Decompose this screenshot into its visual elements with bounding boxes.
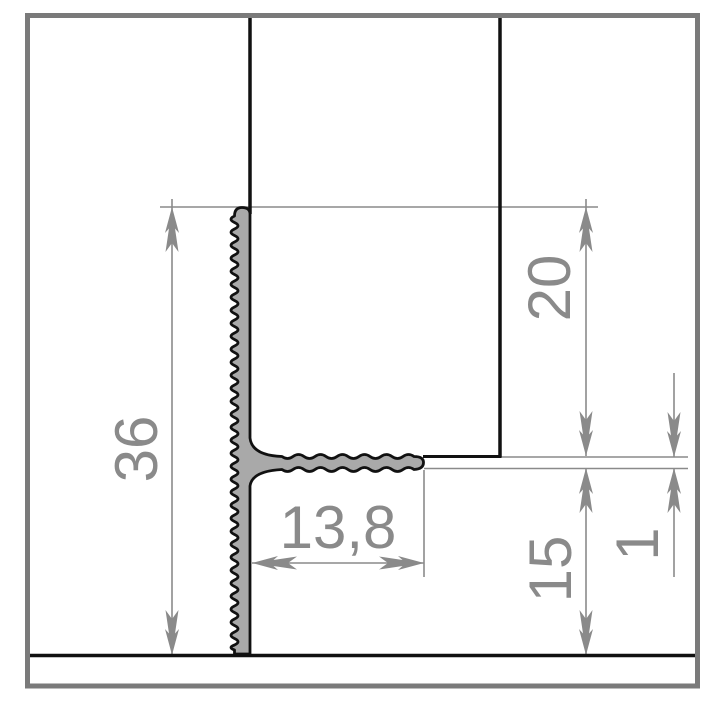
drawing-frame [28, 16, 698, 687]
dim-20-label: 20 [520, 255, 580, 322]
profile-shape [231, 208, 424, 655]
drawing-svg [0, 0, 723, 712]
dim-1-label: 1 [608, 527, 668, 560]
technical-drawing: 36 20 15 1 13,8 [0, 0, 723, 712]
dim-13-8-label: 13,8 [280, 498, 397, 558]
dim-36-label: 36 [107, 416, 167, 483]
dim-15-label: 15 [521, 536, 581, 603]
